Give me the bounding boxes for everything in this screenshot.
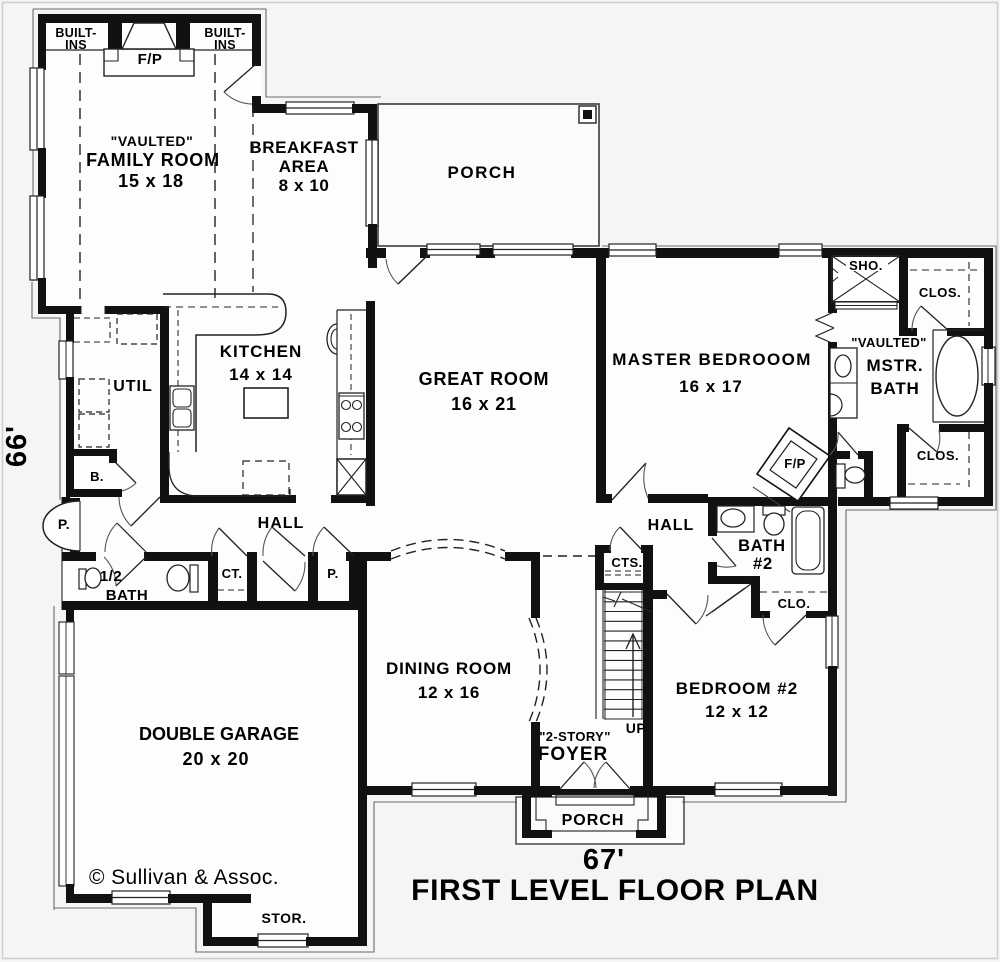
- svg-text:14 x 14: 14 x 14: [229, 365, 293, 384]
- svg-text:F/P: F/P: [784, 456, 805, 471]
- svg-text:CLOS.: CLOS.: [919, 285, 961, 300]
- svg-text:AREA: AREA: [279, 157, 330, 176]
- svg-text:67': 67': [583, 844, 625, 876]
- svg-text:SHO.: SHO.: [849, 258, 883, 273]
- svg-text:INS: INS: [214, 38, 236, 52]
- svg-text:16 x 17: 16 x 17: [679, 377, 743, 396]
- svg-text:KITCHEN: KITCHEN: [220, 342, 303, 361]
- svg-text:HALL: HALL: [258, 515, 305, 532]
- svg-text:BATH: BATH: [870, 379, 919, 398]
- svg-text:12 x 12: 12 x 12: [705, 702, 769, 721]
- svg-text:BREAKFAST: BREAKFAST: [249, 138, 358, 157]
- svg-text:#2: #2: [753, 555, 773, 573]
- svg-text:CTS.: CTS.: [611, 555, 642, 570]
- svg-text:P.: P.: [58, 516, 70, 532]
- svg-text:20 x 20: 20 x 20: [182, 749, 249, 769]
- svg-text:PORCH: PORCH: [562, 812, 625, 829]
- svg-text:FOYER: FOYER: [538, 744, 608, 765]
- svg-text:12 x 16: 12 x 16: [418, 683, 480, 702]
- svg-text:DOUBLE GARAGE: DOUBLE GARAGE: [139, 724, 299, 744]
- svg-text:F/P: F/P: [138, 51, 163, 68]
- svg-text:"2-STORY": "2-STORY": [539, 729, 611, 744]
- svg-text:66': 66': [1, 425, 33, 467]
- svg-text:PORCH: PORCH: [448, 163, 517, 182]
- svg-text:8 x 10: 8 x 10: [279, 176, 330, 195]
- svg-text:INS: INS: [65, 38, 87, 52]
- svg-text:HALL: HALL: [648, 517, 695, 534]
- svg-text:1/2: 1/2: [100, 568, 122, 585]
- svg-text:FAMILY ROOM: FAMILY ROOM: [86, 150, 220, 170]
- svg-text:P.: P.: [327, 566, 338, 581]
- svg-text:GREAT ROOM: GREAT ROOM: [419, 369, 550, 389]
- svg-text:B.: B.: [90, 469, 104, 484]
- svg-text:CLOS.: CLOS.: [917, 448, 959, 463]
- svg-text:MSTR.: MSTR.: [867, 356, 924, 375]
- svg-text:UP: UP: [626, 720, 646, 736]
- svg-text:15 x 18: 15 x 18: [118, 171, 184, 191]
- svg-text:CT.: CT.: [222, 566, 243, 581]
- svg-text:BATH: BATH: [738, 537, 786, 555]
- svg-text:"VAULTED": "VAULTED": [851, 335, 926, 350]
- svg-text:DINING ROOM: DINING ROOM: [386, 659, 512, 678]
- svg-text:UTIL: UTIL: [113, 378, 153, 395]
- svg-text:CLO.: CLO.: [778, 596, 811, 611]
- svg-text:16 x 21: 16 x 21: [451, 394, 517, 414]
- svg-text:MASTER BEDROOOM: MASTER BEDROOOM: [612, 350, 812, 369]
- svg-text:"VAULTED": "VAULTED": [111, 133, 194, 149]
- svg-text:BEDROOM #2: BEDROOM #2: [676, 679, 798, 698]
- svg-text:© Sullivan & Assoc.: © Sullivan & Assoc.: [89, 866, 279, 889]
- svg-text:STOR.: STOR.: [261, 910, 306, 926]
- svg-text:FIRST LEVEL FLOOR PLAN: FIRST LEVEL FLOOR PLAN: [411, 874, 819, 907]
